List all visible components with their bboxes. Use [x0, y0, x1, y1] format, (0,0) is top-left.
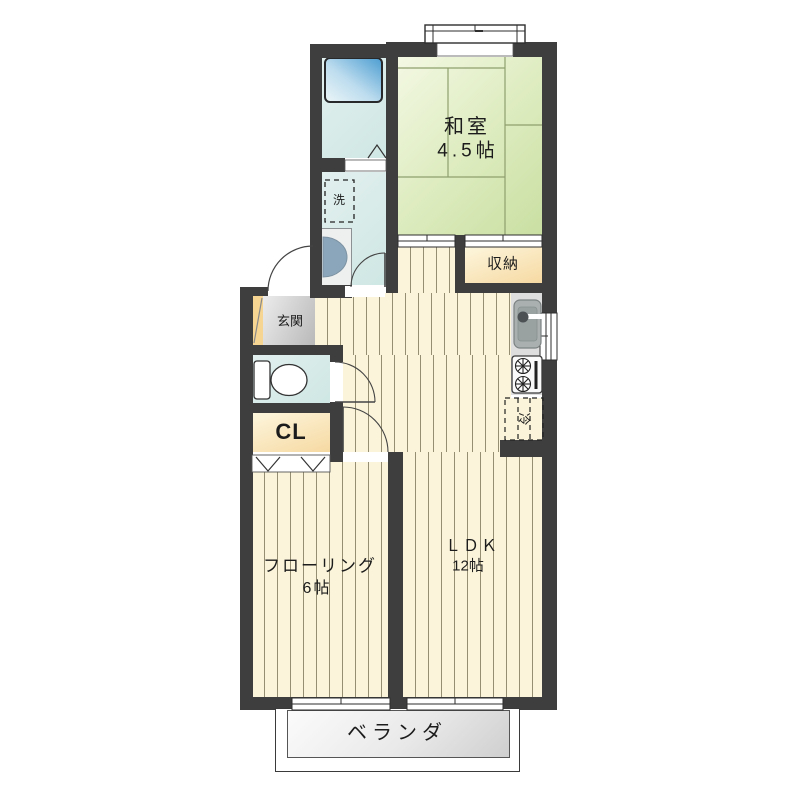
closet-folding-door-icon [252, 455, 330, 472]
toilet-icon [254, 361, 307, 399]
floor-plan: 和室 4.5帖 収納 玄関 CL 洗 冷 フローリング 6帖 ＬＤＫ 12帖 ベ… [0, 0, 800, 800]
kitchen-sink-icon [514, 300, 544, 348]
washitsu-size: 4.5帖 [437, 142, 498, 161]
ldk-name: ＬＤＫ [445, 539, 499, 555]
window-bottom-left-icon [292, 698, 390, 710]
entrance-label: 玄関 [277, 315, 303, 328]
entrance-step-line [254, 298, 262, 343]
washroom-door-icon [345, 253, 385, 297]
veranda-label: ベランダ [347, 723, 447, 743]
closet-label: CL [275, 421, 306, 443]
ldk-size: 12帖 [452, 559, 484, 574]
stove-icon [512, 356, 542, 393]
flooring-size: 6帖 [303, 581, 332, 597]
sliding-door-storage-icon [465, 235, 542, 247]
washitsu-name: 和室 [444, 117, 490, 137]
toilet-door-icon [331, 362, 375, 402]
flooring-room-door-icon [343, 407, 388, 462]
storage-label: 収納 [487, 257, 519, 272]
symbols-overlay [0, 0, 800, 800]
window-kitchen-icon [540, 313, 557, 360]
washbasin-bowl-icon [323, 237, 347, 277]
window-top-icon [425, 25, 525, 56]
window-bottom-right-icon [407, 698, 503, 710]
fridge-label: 冷 [518, 412, 531, 425]
bathroom-door-icon [345, 145, 386, 171]
entrance-door-icon [268, 246, 313, 296]
flooring-name: フローリング [263, 558, 377, 575]
laundry-label: 洗 [333, 194, 345, 206]
sliding-door-washitsu-icon [398, 235, 455, 247]
